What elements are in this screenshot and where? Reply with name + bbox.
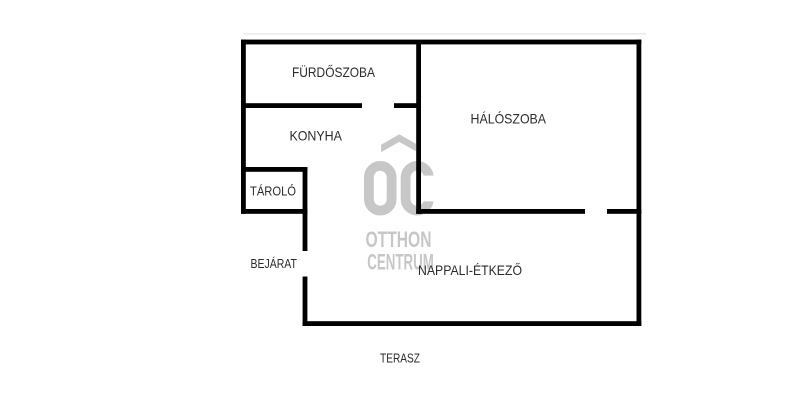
svg-text:HÁLÓSZOBA: HÁLÓSZOBA (471, 111, 547, 127)
svg-text:TÁROLÓ: TÁROLÓ (250, 183, 296, 198)
svg-text:BEJÁRAT: BEJÁRAT (250, 256, 297, 271)
svg-text:OTTHON: OTTHON (366, 227, 432, 252)
svg-text:TERASZ: TERASZ (380, 351, 420, 365)
svg-text:NAPPALI-ÉTKEZŐ: NAPPALI-ÉTKEZŐ (418, 262, 522, 278)
svg-text:FÜRDŐSZOBA: FÜRDŐSZOBA (292, 63, 376, 80)
svg-text:KONYHA: KONYHA (289, 128, 342, 144)
